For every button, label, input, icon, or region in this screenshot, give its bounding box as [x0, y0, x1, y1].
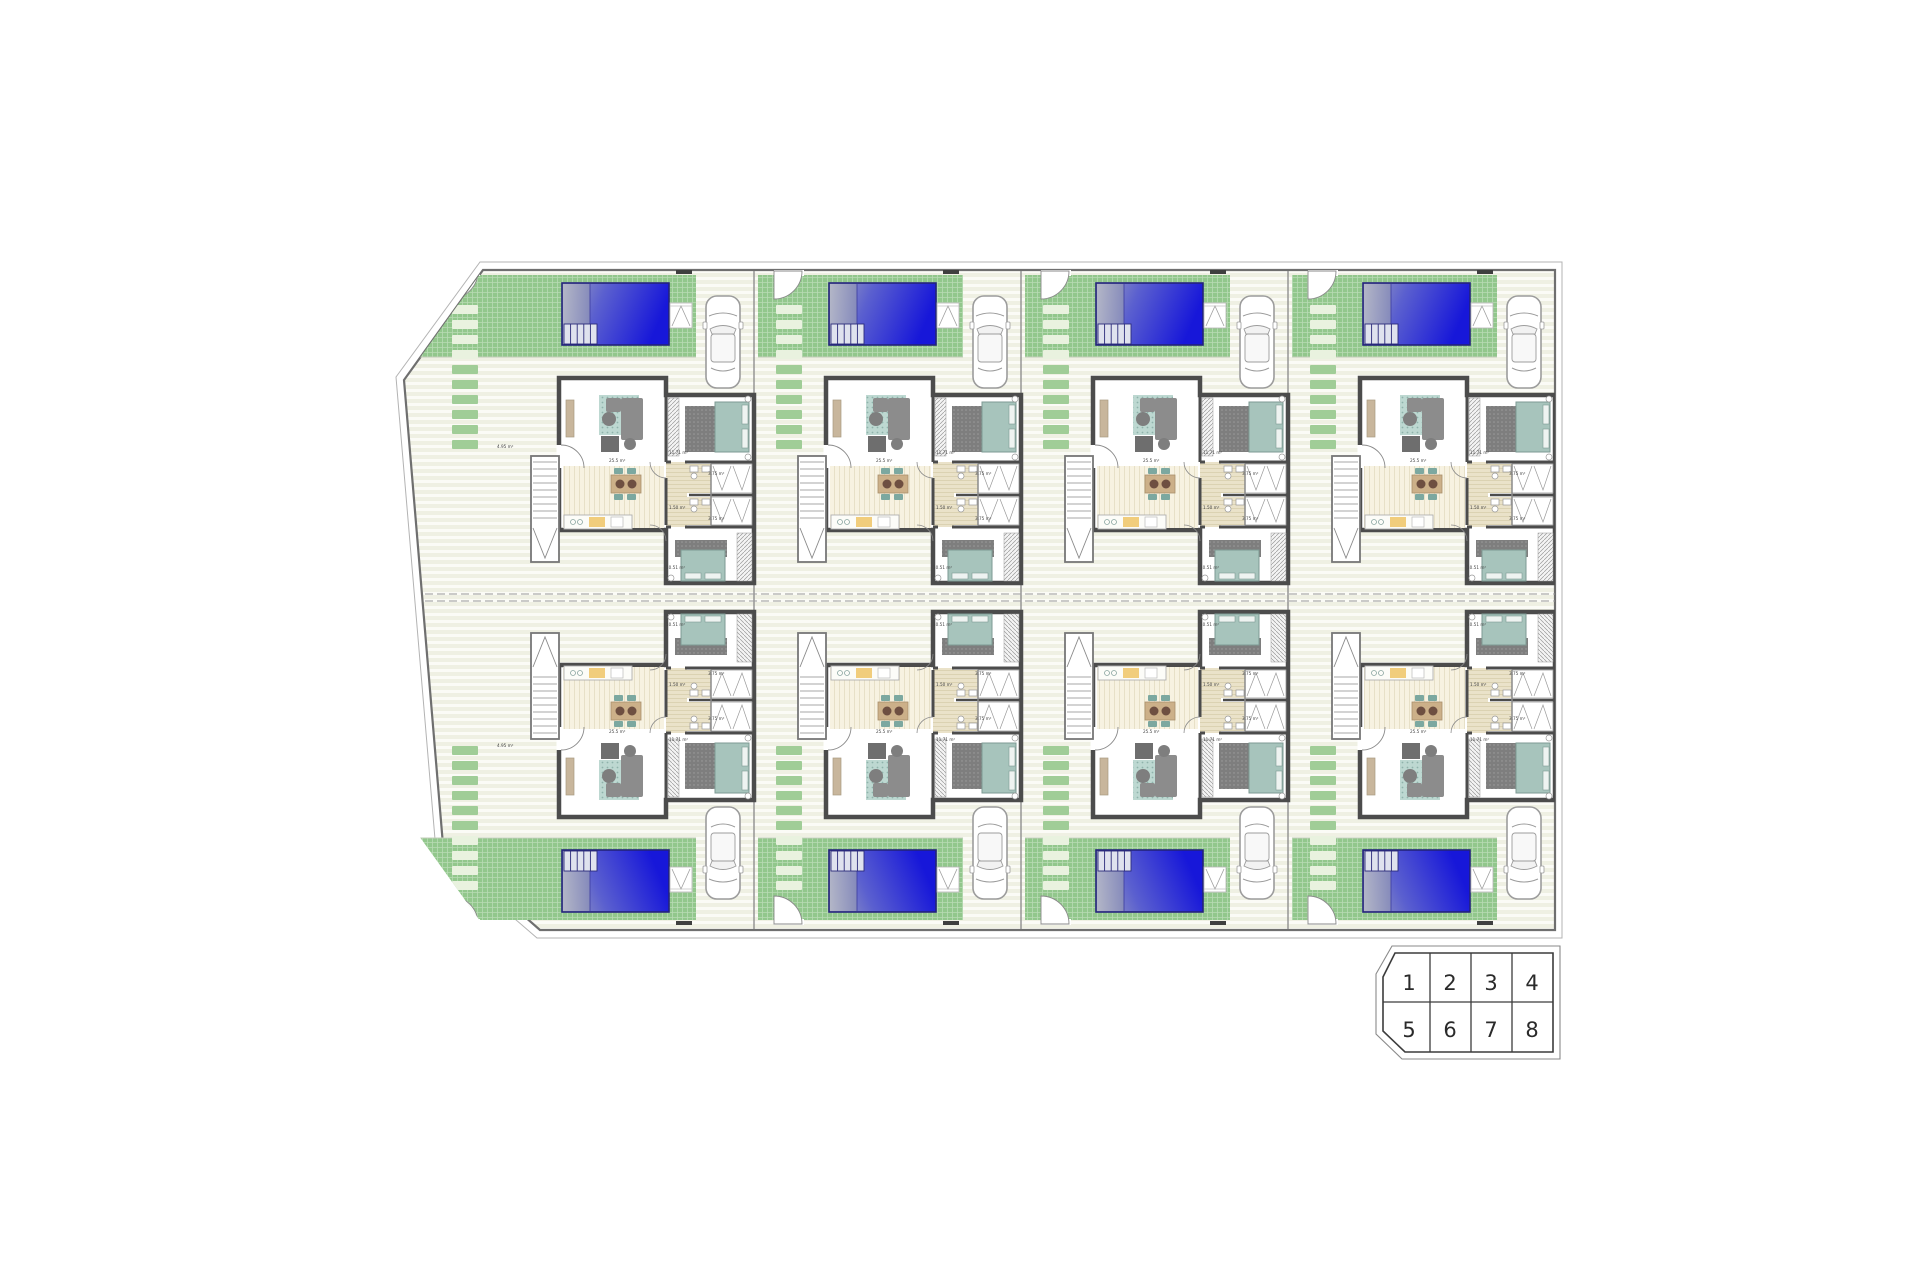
sink	[1236, 499, 1244, 505]
bedroom-rug	[1219, 743, 1249, 789]
boundary-pier	[676, 266, 692, 274]
toilet	[957, 690, 965, 696]
sink	[969, 499, 977, 505]
wardrobe	[1538, 614, 1553, 662]
car-icon	[1504, 296, 1544, 388]
nightstand-lamp	[1202, 575, 1208, 581]
staircase	[531, 456, 559, 562]
pool-steps	[831, 324, 864, 344]
dining-chair	[1428, 721, 1437, 727]
dining-chair	[1415, 468, 1424, 474]
room-area-label: 3.75 m²	[975, 471, 992, 476]
dining-chair	[627, 494, 636, 500]
dining-chair	[881, 695, 890, 701]
dining-chair	[1161, 468, 1170, 474]
sink	[1503, 499, 1511, 505]
kitchen-counter	[831, 515, 899, 529]
dining-chair	[627, 468, 636, 474]
pool-steps	[1365, 324, 1398, 344]
toilet	[1224, 723, 1232, 729]
armchair	[1403, 769, 1417, 783]
swimming-pool	[1363, 283, 1470, 345]
room-area-label: 11.71 m²	[669, 450, 688, 455]
tv-console	[566, 400, 574, 437]
room-area-label: 3.75 m²	[1242, 671, 1259, 676]
coffee-table	[1135, 436, 1153, 452]
room-area-label: 25.5 m²	[876, 458, 893, 463]
room-area-label: 1.50 m²	[936, 505, 953, 510]
staircase	[531, 633, 559, 739]
room-area-label: 1.50 m²	[936, 682, 953, 687]
dining-chair	[1415, 721, 1424, 727]
sink	[702, 499, 710, 505]
nightstand-lamp	[1279, 735, 1285, 741]
car-icon	[970, 296, 1010, 388]
sofa	[1407, 783, 1422, 797]
sink	[1236, 690, 1244, 696]
bedroom-2	[935, 533, 1019, 581]
sofa	[606, 398, 621, 412]
room-area-label: 1.50 m²	[669, 505, 686, 510]
swimming-pool	[829, 850, 936, 912]
nightstand-lamp	[1546, 735, 1552, 741]
room-area-label: 3.75 m²	[708, 516, 725, 521]
nightstand-lamp	[668, 575, 674, 581]
room-area-label: 11.71 m²	[669, 737, 688, 742]
room-area-label: 11.71 m²	[1203, 450, 1222, 455]
appliance	[611, 517, 623, 527]
cooktop	[1123, 668, 1139, 678]
pool-steps	[1098, 851, 1131, 871]
dining-chair	[1161, 721, 1170, 727]
bedroom-rug	[952, 406, 982, 452]
sofa	[621, 398, 643, 440]
nightstand-lamp	[1546, 793, 1552, 799]
boundary-pier	[1477, 266, 1493, 274]
room-area-label: 10.51 m²	[1467, 565, 1486, 570]
nightstand-lamp	[1202, 614, 1208, 620]
room-area-label: 3.75 m²	[1242, 471, 1259, 476]
nightstand-lamp	[1546, 396, 1552, 402]
dining-chair	[1161, 494, 1170, 500]
sofa	[1407, 398, 1422, 412]
shower-area	[1471, 303, 1493, 328]
sofa	[606, 783, 621, 797]
boundary-pier	[1210, 266, 1226, 274]
tv-console	[1100, 400, 1108, 437]
cooktop	[1390, 517, 1406, 527]
coffee-table	[601, 436, 619, 452]
key-plan-cell: 7	[1484, 1018, 1497, 1042]
room-area-label: 3.75 m²	[1509, 716, 1526, 721]
wardrobe	[1538, 533, 1553, 581]
sink	[702, 690, 710, 696]
staircase	[1332, 633, 1360, 739]
pool-steps	[564, 324, 597, 344]
bedroom-rug	[1486, 743, 1516, 789]
toilet	[690, 690, 698, 696]
car-icon	[1237, 807, 1277, 899]
pool-steps	[1365, 851, 1398, 871]
room-area-label: 10.51 m²	[666, 565, 685, 570]
room-area-label: 25.5 m²	[1410, 458, 1427, 463]
room-area-label: 11.71 m²	[1203, 737, 1222, 742]
armchair	[1403, 412, 1417, 426]
cooktop	[589, 517, 605, 527]
room-area-label: 25.5 m²	[609, 458, 626, 463]
room-area-label: 25.5 m²	[1143, 458, 1160, 463]
coffee-table	[1402, 743, 1420, 759]
pouf	[1158, 438, 1170, 450]
sofa	[1140, 398, 1155, 412]
armchair	[602, 412, 616, 426]
room-area-label: 1.50 m²	[669, 682, 686, 687]
pool-steps	[1098, 324, 1131, 344]
dining-chair	[614, 494, 623, 500]
tv-console	[1367, 758, 1375, 795]
room-area-label: 11.71 m²	[936, 450, 955, 455]
coffee-table	[1402, 436, 1420, 452]
room-area-label: 11.71 m²	[1470, 450, 1489, 455]
gate-opening	[450, 265, 480, 276]
sofa	[888, 398, 910, 440]
shower-area	[937, 303, 959, 328]
dining-chair	[1148, 494, 1157, 500]
car-icon	[1504, 807, 1544, 899]
room-area-label: 3.75 m²	[708, 471, 725, 476]
toilet	[1491, 723, 1499, 729]
dining-chair	[614, 721, 623, 727]
room-area-label: 1.50 m²	[1470, 505, 1487, 510]
wardrobe	[737, 614, 752, 662]
sofa	[1422, 755, 1444, 797]
hall-floor	[666, 668, 687, 733]
nightstand-lamp	[745, 735, 751, 741]
nightstand-lamp	[1012, 454, 1018, 460]
staircase	[798, 456, 826, 562]
nightstand-lamp	[1012, 396, 1018, 402]
wardrobe	[935, 398, 946, 456]
dining-chair	[1161, 695, 1170, 701]
bedroom-rug	[1486, 406, 1516, 452]
room-area-label: 1.50 m²	[1203, 682, 1220, 687]
toilet	[690, 466, 698, 472]
wardrobe	[1004, 533, 1019, 581]
key-plan-cell: 5	[1402, 1018, 1415, 1042]
wardrobe	[935, 739, 946, 797]
shower-area	[1471, 867, 1493, 892]
wardrobe	[1004, 614, 1019, 662]
appliance	[1145, 668, 1157, 678]
room-area-label: 10.51 m²	[1200, 565, 1219, 570]
key-plan-cell: 2	[1443, 971, 1456, 995]
shower-area	[670, 303, 692, 328]
dining-chair	[894, 721, 903, 727]
nightstand-lamp	[935, 575, 941, 581]
nightstand-lamp	[935, 614, 941, 620]
pouf	[1425, 438, 1437, 450]
room-area-label: 10.51 m²	[1467, 622, 1486, 627]
nightstand-lamp	[1469, 575, 1475, 581]
room-area-label: 3.75 m²	[975, 516, 992, 521]
nightstand-lamp	[745, 793, 751, 799]
dining-chair	[881, 494, 890, 500]
dining-chair	[1428, 695, 1437, 701]
dining-chair	[881, 721, 890, 727]
hall-floor	[1467, 668, 1488, 733]
wardrobe	[737, 533, 752, 581]
bedroom-rug	[1219, 406, 1249, 452]
tv-console	[1367, 400, 1375, 437]
bedroom-rug	[685, 743, 715, 789]
wardrobe	[1202, 398, 1213, 456]
wardrobe	[1469, 739, 1480, 797]
pouf	[1158, 745, 1170, 757]
wardrobe	[1202, 739, 1213, 797]
staircase	[1065, 633, 1093, 739]
dining-chair	[894, 494, 903, 500]
shower-area	[1204, 867, 1226, 892]
room-area-label: 1.50 m²	[1203, 505, 1220, 510]
sofa	[1422, 398, 1444, 440]
armchair	[869, 412, 883, 426]
room-area-label: 10.51 m²	[933, 565, 952, 570]
coffee-table	[868, 743, 886, 759]
cooktop	[589, 668, 605, 678]
toilet	[690, 499, 698, 505]
coffee-table	[868, 436, 886, 452]
room-area-label: 10.51 m²	[1200, 622, 1219, 627]
key-plan-cell: 6	[1443, 1018, 1456, 1042]
gate-opening	[450, 919, 480, 930]
armchair	[1136, 769, 1150, 783]
nightstand-lamp	[1279, 454, 1285, 460]
bedroom-2	[668, 533, 752, 581]
room-area-label: 10.51 m²	[933, 622, 952, 627]
toilet	[1491, 466, 1499, 472]
cooktop	[856, 668, 872, 678]
toilet	[690, 723, 698, 729]
wardrobe	[668, 398, 679, 456]
dining-chair	[1428, 494, 1437, 500]
shower-area	[670, 867, 692, 892]
room-area-label: 10.51 m²	[666, 622, 685, 627]
hall-floor	[1467, 462, 1488, 527]
pouf	[891, 745, 903, 757]
swimming-pool	[562, 283, 669, 345]
tv-console	[833, 758, 841, 795]
room-area-label: 3.75 m²	[975, 716, 992, 721]
sofa	[621, 755, 643, 797]
staircase	[798, 633, 826, 739]
appliance	[1145, 517, 1157, 527]
swimming-pool	[1096, 283, 1203, 345]
wardrobe	[1271, 533, 1286, 581]
appliance	[1412, 668, 1424, 678]
room-area-label: 3.75 m²	[1509, 516, 1526, 521]
swimming-pool	[1096, 850, 1203, 912]
wardrobe	[1469, 398, 1480, 456]
room-area-label: 11.71 m²	[1470, 737, 1489, 742]
floor-plan-canvas: 25.5 m²11.71 m²3.75 m²3.75 m²1.50 m²10.5…	[0, 0, 1920, 1280]
kitchen-counter	[564, 515, 632, 529]
boundary-pier	[943, 266, 959, 274]
swimming-pool	[562, 850, 669, 912]
wardrobe	[1271, 614, 1286, 662]
cooktop	[1123, 517, 1139, 527]
car-icon	[970, 807, 1010, 899]
toilet	[1224, 499, 1232, 505]
dining-chair	[1148, 468, 1157, 474]
dining-chair	[1415, 695, 1424, 701]
staircase	[1065, 456, 1093, 562]
wardrobe	[668, 739, 679, 797]
toilet	[1491, 690, 1499, 696]
dining-chair	[1428, 468, 1437, 474]
appliance	[611, 668, 623, 678]
sofa	[1155, 398, 1177, 440]
nightstand-lamp	[1279, 396, 1285, 402]
key-plan-cell: 3	[1484, 971, 1497, 995]
pouf	[891, 438, 903, 450]
pool-steps	[564, 851, 597, 871]
toilet	[957, 499, 965, 505]
dining-chair	[1148, 721, 1157, 727]
bedroom-2	[1469, 533, 1553, 581]
kitchen-counter	[1098, 515, 1166, 529]
nightstand-lamp	[745, 454, 751, 460]
car-icon	[703, 807, 743, 899]
kitchen-counter	[1365, 515, 1433, 529]
room-area-label: 3.75 m²	[708, 716, 725, 721]
staircase	[1332, 456, 1360, 562]
armchair	[869, 769, 883, 783]
room-area-label: 3.75 m²	[975, 671, 992, 676]
sink	[1503, 690, 1511, 696]
sink	[969, 690, 977, 696]
sofa	[1155, 755, 1177, 797]
shower-area	[1204, 303, 1226, 328]
cooktop	[1390, 668, 1406, 678]
room-area-label: 25.5 m²	[609, 729, 626, 734]
bedroom-2	[1202, 533, 1286, 581]
pool-steps	[831, 851, 864, 871]
toilet	[1224, 466, 1232, 472]
toilet	[1224, 690, 1232, 696]
nightstand-lamp	[1012, 793, 1018, 799]
swimming-pool	[1363, 850, 1470, 912]
pouf	[1425, 745, 1437, 757]
sink	[702, 723, 710, 729]
tv-console	[566, 758, 574, 795]
room-area-label: 11.71 m²	[936, 737, 955, 742]
toilet	[1491, 499, 1499, 505]
dining-chair	[894, 695, 903, 701]
room-area-label: 3.75 m²	[1509, 471, 1526, 476]
kitchen-counter	[1098, 666, 1166, 680]
armchair	[1136, 412, 1150, 426]
room-area-label: 4.95 m²	[497, 743, 514, 748]
sink	[1236, 723, 1244, 729]
key-plan: 12345678	[1376, 946, 1560, 1059]
room-area-label: 4.95 m²	[497, 444, 514, 449]
pouf	[624, 438, 636, 450]
coffee-table	[601, 743, 619, 759]
key-plan-cell: 4	[1525, 971, 1538, 995]
toilet	[957, 466, 965, 472]
dining-chair	[627, 721, 636, 727]
sofa	[873, 783, 888, 797]
site-plan-drawing: 25.5 m²11.71 m²3.75 m²3.75 m²1.50 m²10.5…	[0, 0, 1920, 1280]
dining-chair	[1415, 494, 1424, 500]
cooktop	[856, 517, 872, 527]
sofa	[1140, 783, 1155, 797]
hall-floor	[933, 668, 954, 733]
kitchen-counter	[564, 666, 632, 680]
sofa	[873, 398, 888, 412]
tv-console	[1100, 758, 1108, 795]
nightstand-lamp	[1279, 793, 1285, 799]
key-plan-cell: 1	[1402, 971, 1415, 995]
nightstand-lamp	[745, 396, 751, 402]
swimming-pool	[829, 283, 936, 345]
appliance	[1412, 517, 1424, 527]
appliance	[878, 668, 890, 678]
bedroom-rug	[952, 743, 982, 789]
sink	[1503, 723, 1511, 729]
room-area-label: 1.50 m²	[1470, 682, 1487, 687]
room-area-label: 3.75 m²	[1242, 516, 1259, 521]
nightstand-lamp	[1546, 454, 1552, 460]
pouf	[624, 745, 636, 757]
toilet	[957, 723, 965, 729]
room-area-label: 25.5 m²	[1143, 729, 1160, 734]
nightstand-lamp	[668, 614, 674, 620]
room-area-label: 3.75 m²	[1509, 671, 1526, 676]
tv-console	[833, 400, 841, 437]
nightstand-lamp	[1012, 735, 1018, 741]
dining-chair	[614, 468, 623, 474]
kitchen-counter	[1365, 666, 1433, 680]
kitchen-counter	[831, 666, 899, 680]
dining-chair	[627, 695, 636, 701]
hall-floor	[933, 462, 954, 527]
room-area-label: 25.5 m²	[876, 729, 893, 734]
car-icon	[703, 296, 743, 388]
hall-floor	[666, 462, 687, 527]
hall-floor	[1200, 462, 1221, 527]
dining-chair	[614, 695, 623, 701]
room-area-label: 3.75 m²	[1242, 716, 1259, 721]
armchair	[602, 769, 616, 783]
hall-floor	[1200, 668, 1221, 733]
coffee-table	[1135, 743, 1153, 759]
key-plan-cell: 8	[1525, 1018, 1538, 1042]
sofa	[888, 755, 910, 797]
bedroom-rug	[685, 406, 715, 452]
dining-chair	[1148, 695, 1157, 701]
dining-chair	[894, 468, 903, 474]
sink	[969, 723, 977, 729]
shower-area	[937, 867, 959, 892]
dining-chair	[881, 468, 890, 474]
appliance	[878, 517, 890, 527]
car-icon	[1237, 296, 1277, 388]
room-area-label: 3.75 m²	[708, 671, 725, 676]
room-area-label: 25.5 m²	[1410, 729, 1427, 734]
nightstand-lamp	[1469, 614, 1475, 620]
